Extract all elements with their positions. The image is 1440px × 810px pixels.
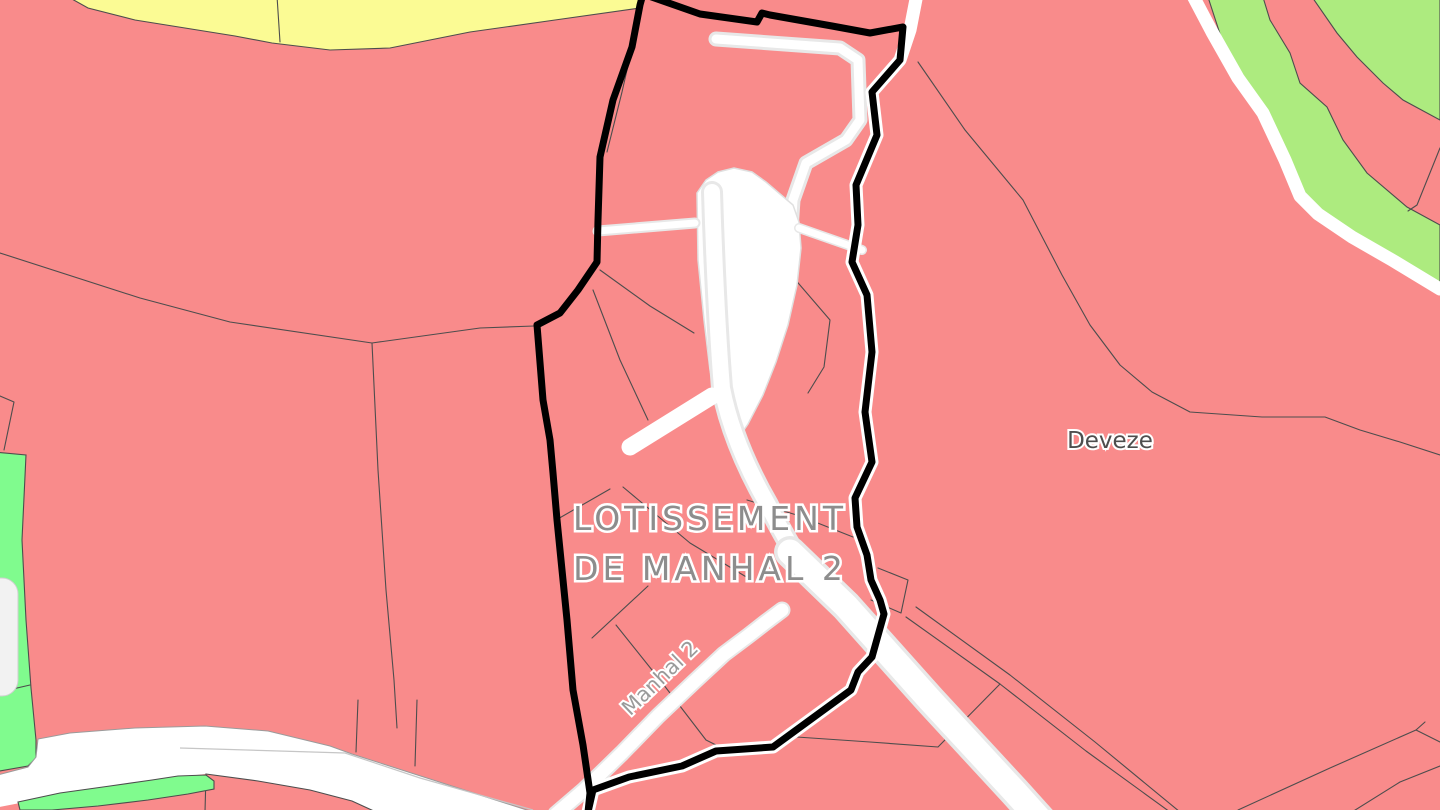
lotissement-title-line2: DE MANHAL 2: [573, 549, 847, 588]
lotissement-title-line1: LOTISSEMENT: [573, 499, 847, 538]
place-label-deveze: Deveze: [1067, 428, 1153, 454]
map-canvas[interactable]: LOTISSEMENT DE MANHAL 2 Deveze Manhal 2: [0, 0, 1440, 810]
green-strip-clearing: [0, 578, 18, 696]
map-viewport: LOTISSEMENT DE MANHAL 2 Deveze Manhal 2: [0, 0, 1440, 810]
